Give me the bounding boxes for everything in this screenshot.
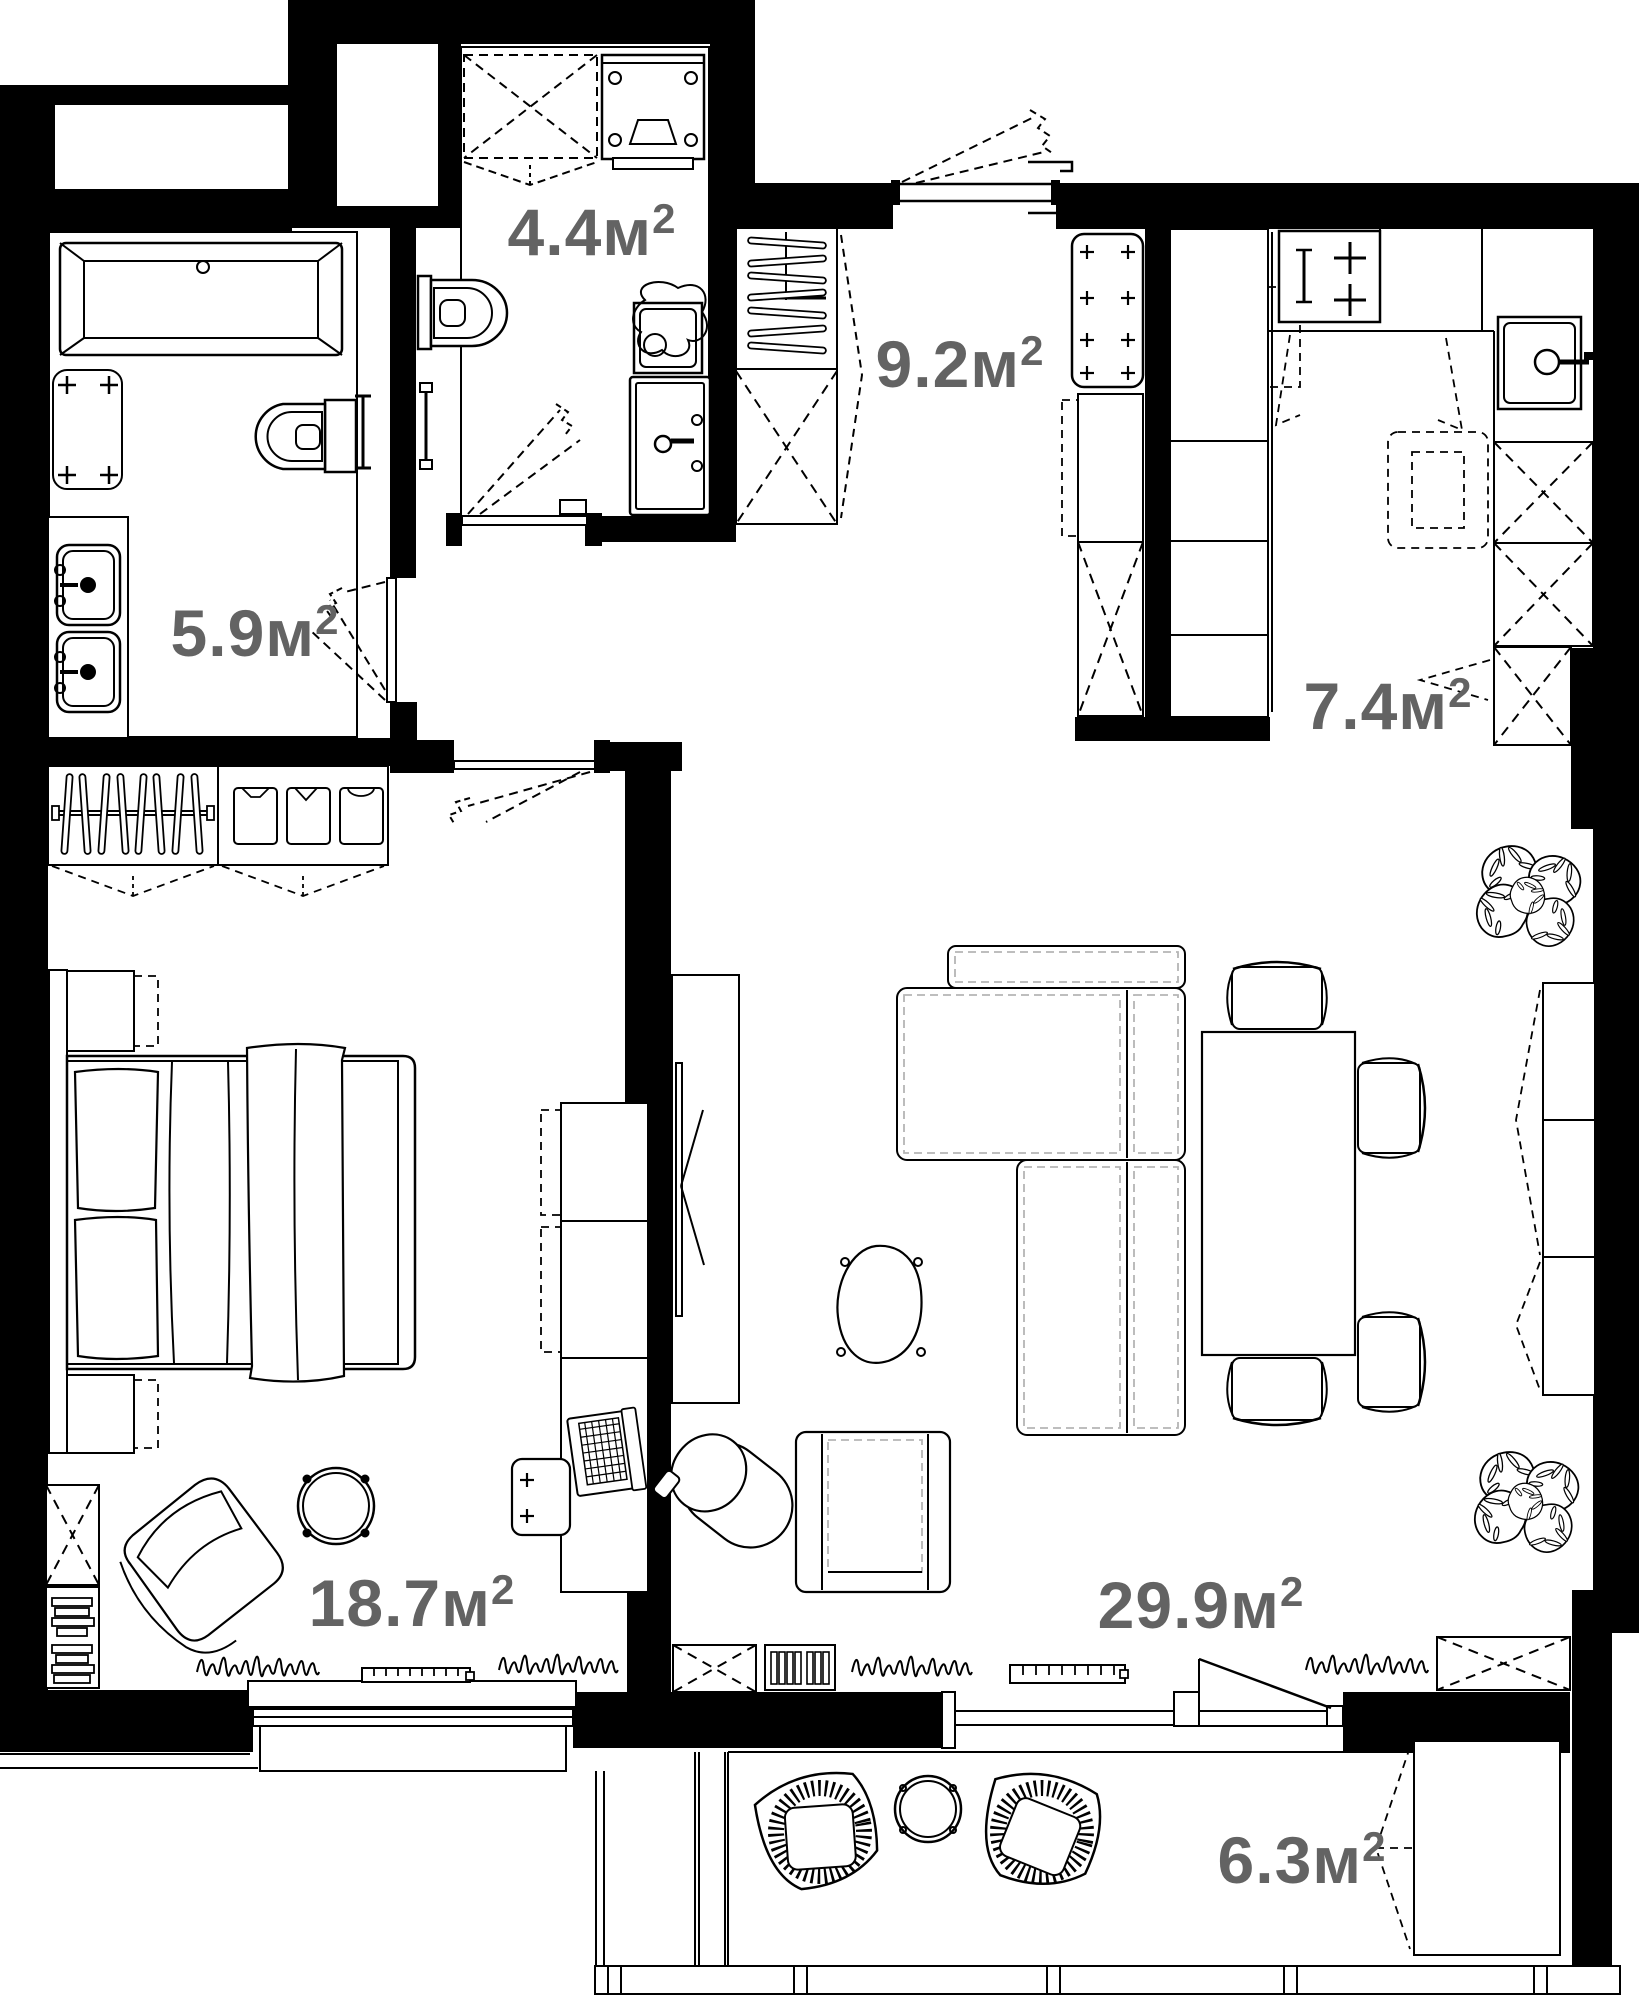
svg-text:6.3м2: 6.3м2 bbox=[1218, 1823, 1387, 1897]
svg-text:29.9м2: 29.9м2 bbox=[1098, 1568, 1305, 1642]
svg-text:7.4м2: 7.4м2 bbox=[1304, 669, 1473, 743]
svg-text:18.7м2: 18.7м2 bbox=[309, 1566, 516, 1640]
svg-text:9.2м2: 9.2м2 bbox=[876, 327, 1045, 401]
svg-text:4.4м2: 4.4м2 bbox=[508, 195, 677, 269]
svg-text:5.9м2: 5.9м2 bbox=[171, 596, 340, 670]
